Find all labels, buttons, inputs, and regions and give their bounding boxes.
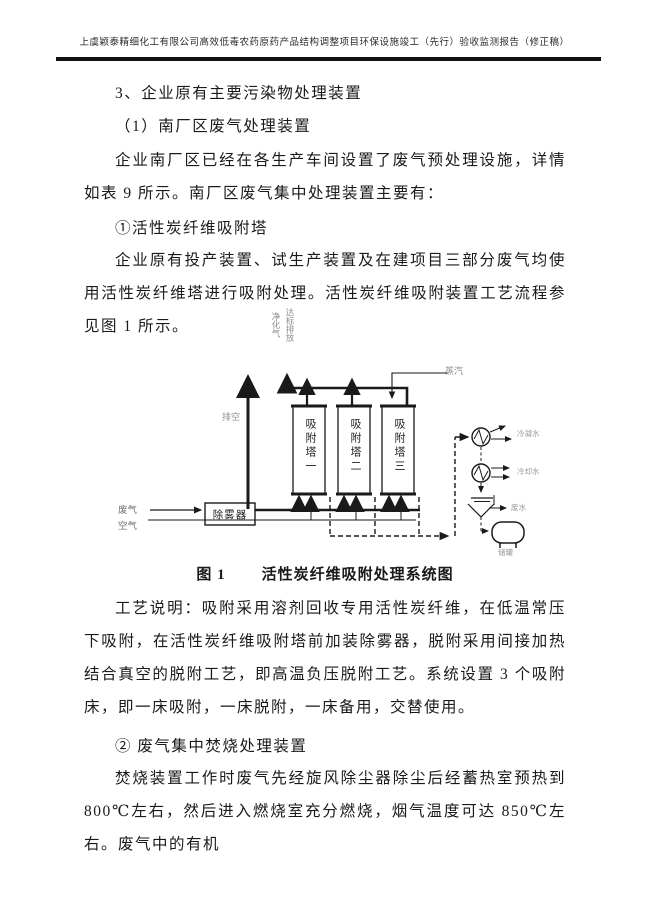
figure-caption: 图 1活性炭纤维吸附处理系统图 — [84, 564, 566, 586]
air-label: 空气 — [118, 518, 137, 532]
page-header-title: 上虞颖泰精细化工有限公司高效低毒农药原药产品结构调整项目环保设施竣工（先行）验收… — [40, 37, 609, 50]
steam-line — [392, 373, 448, 398]
process-flow-diagram: 净化气 达标排放 排空 蒸汽 废气 空气 除雾器 吸附塔一 吸附塔二 吸附塔三 … — [0, 306, 649, 558]
paragraph-incineration: 焚烧装置工作时废气先经旋风除尘器除尘后经蓄热室预热到 800℃左右，然后进入燃烧… — [84, 762, 566, 861]
condenser-out-label: 冷凝水 — [517, 428, 540, 439]
vent-label: 排空 — [222, 410, 240, 423]
item-heading-incineration: ② 废气集中焚烧处理装置 — [84, 730, 566, 763]
steam-label: 蒸汽 — [445, 364, 463, 377]
document-page: 上虞颖泰精细化工有限公司高效低毒农药原药产品结构调整项目环保设施竣工（先行）验收… — [0, 0, 649, 900]
tower3-label: 吸附塔三 — [391, 418, 407, 474]
subsection-heading-1: （1）南厂区废气处理装置 — [84, 110, 566, 143]
section-heading-3: 3、企业原有主要污染物处理装置 — [84, 77, 566, 110]
paragraph-process-description: 工艺说明：吸附采用溶剂回收专用活性炭纤维，在低温常压下吸附，在活性炭纤维吸附塔前… — [84, 592, 566, 724]
separator-funnel — [468, 495, 506, 517]
stack-note-col2: 达标排放 — [284, 308, 296, 342]
tower2-label: 吸附塔二 — [347, 418, 363, 474]
item-heading-acf-tower: ①活性炭纤维吸附塔 — [84, 212, 566, 245]
paragraph-south-area: 企业南厂区已经在各生产车间设置了废气预处理设施，详情如表 9 所示。南厂区废气集… — [84, 144, 566, 210]
figure-caption-title: 活性炭纤维吸附处理系统图 — [262, 567, 454, 583]
figure-caption-label: 图 1 — [196, 567, 225, 583]
flow-diagram-canvas — [0, 306, 649, 558]
solvent-tank — [492, 522, 524, 543]
header-rule — [56, 57, 601, 61]
demister-label: 除雾器 — [205, 503, 255, 525]
stack-note-col1: 净化气 — [270, 312, 282, 338]
tower1-label: 吸附塔一 — [302, 418, 318, 474]
tank-label: 储罐 — [498, 547, 513, 558]
cooler-out-label: 冷却水 — [517, 466, 540, 477]
waste-gas-label: 废气 — [118, 502, 137, 516]
wastewater-label: 废水 — [511, 502, 526, 513]
